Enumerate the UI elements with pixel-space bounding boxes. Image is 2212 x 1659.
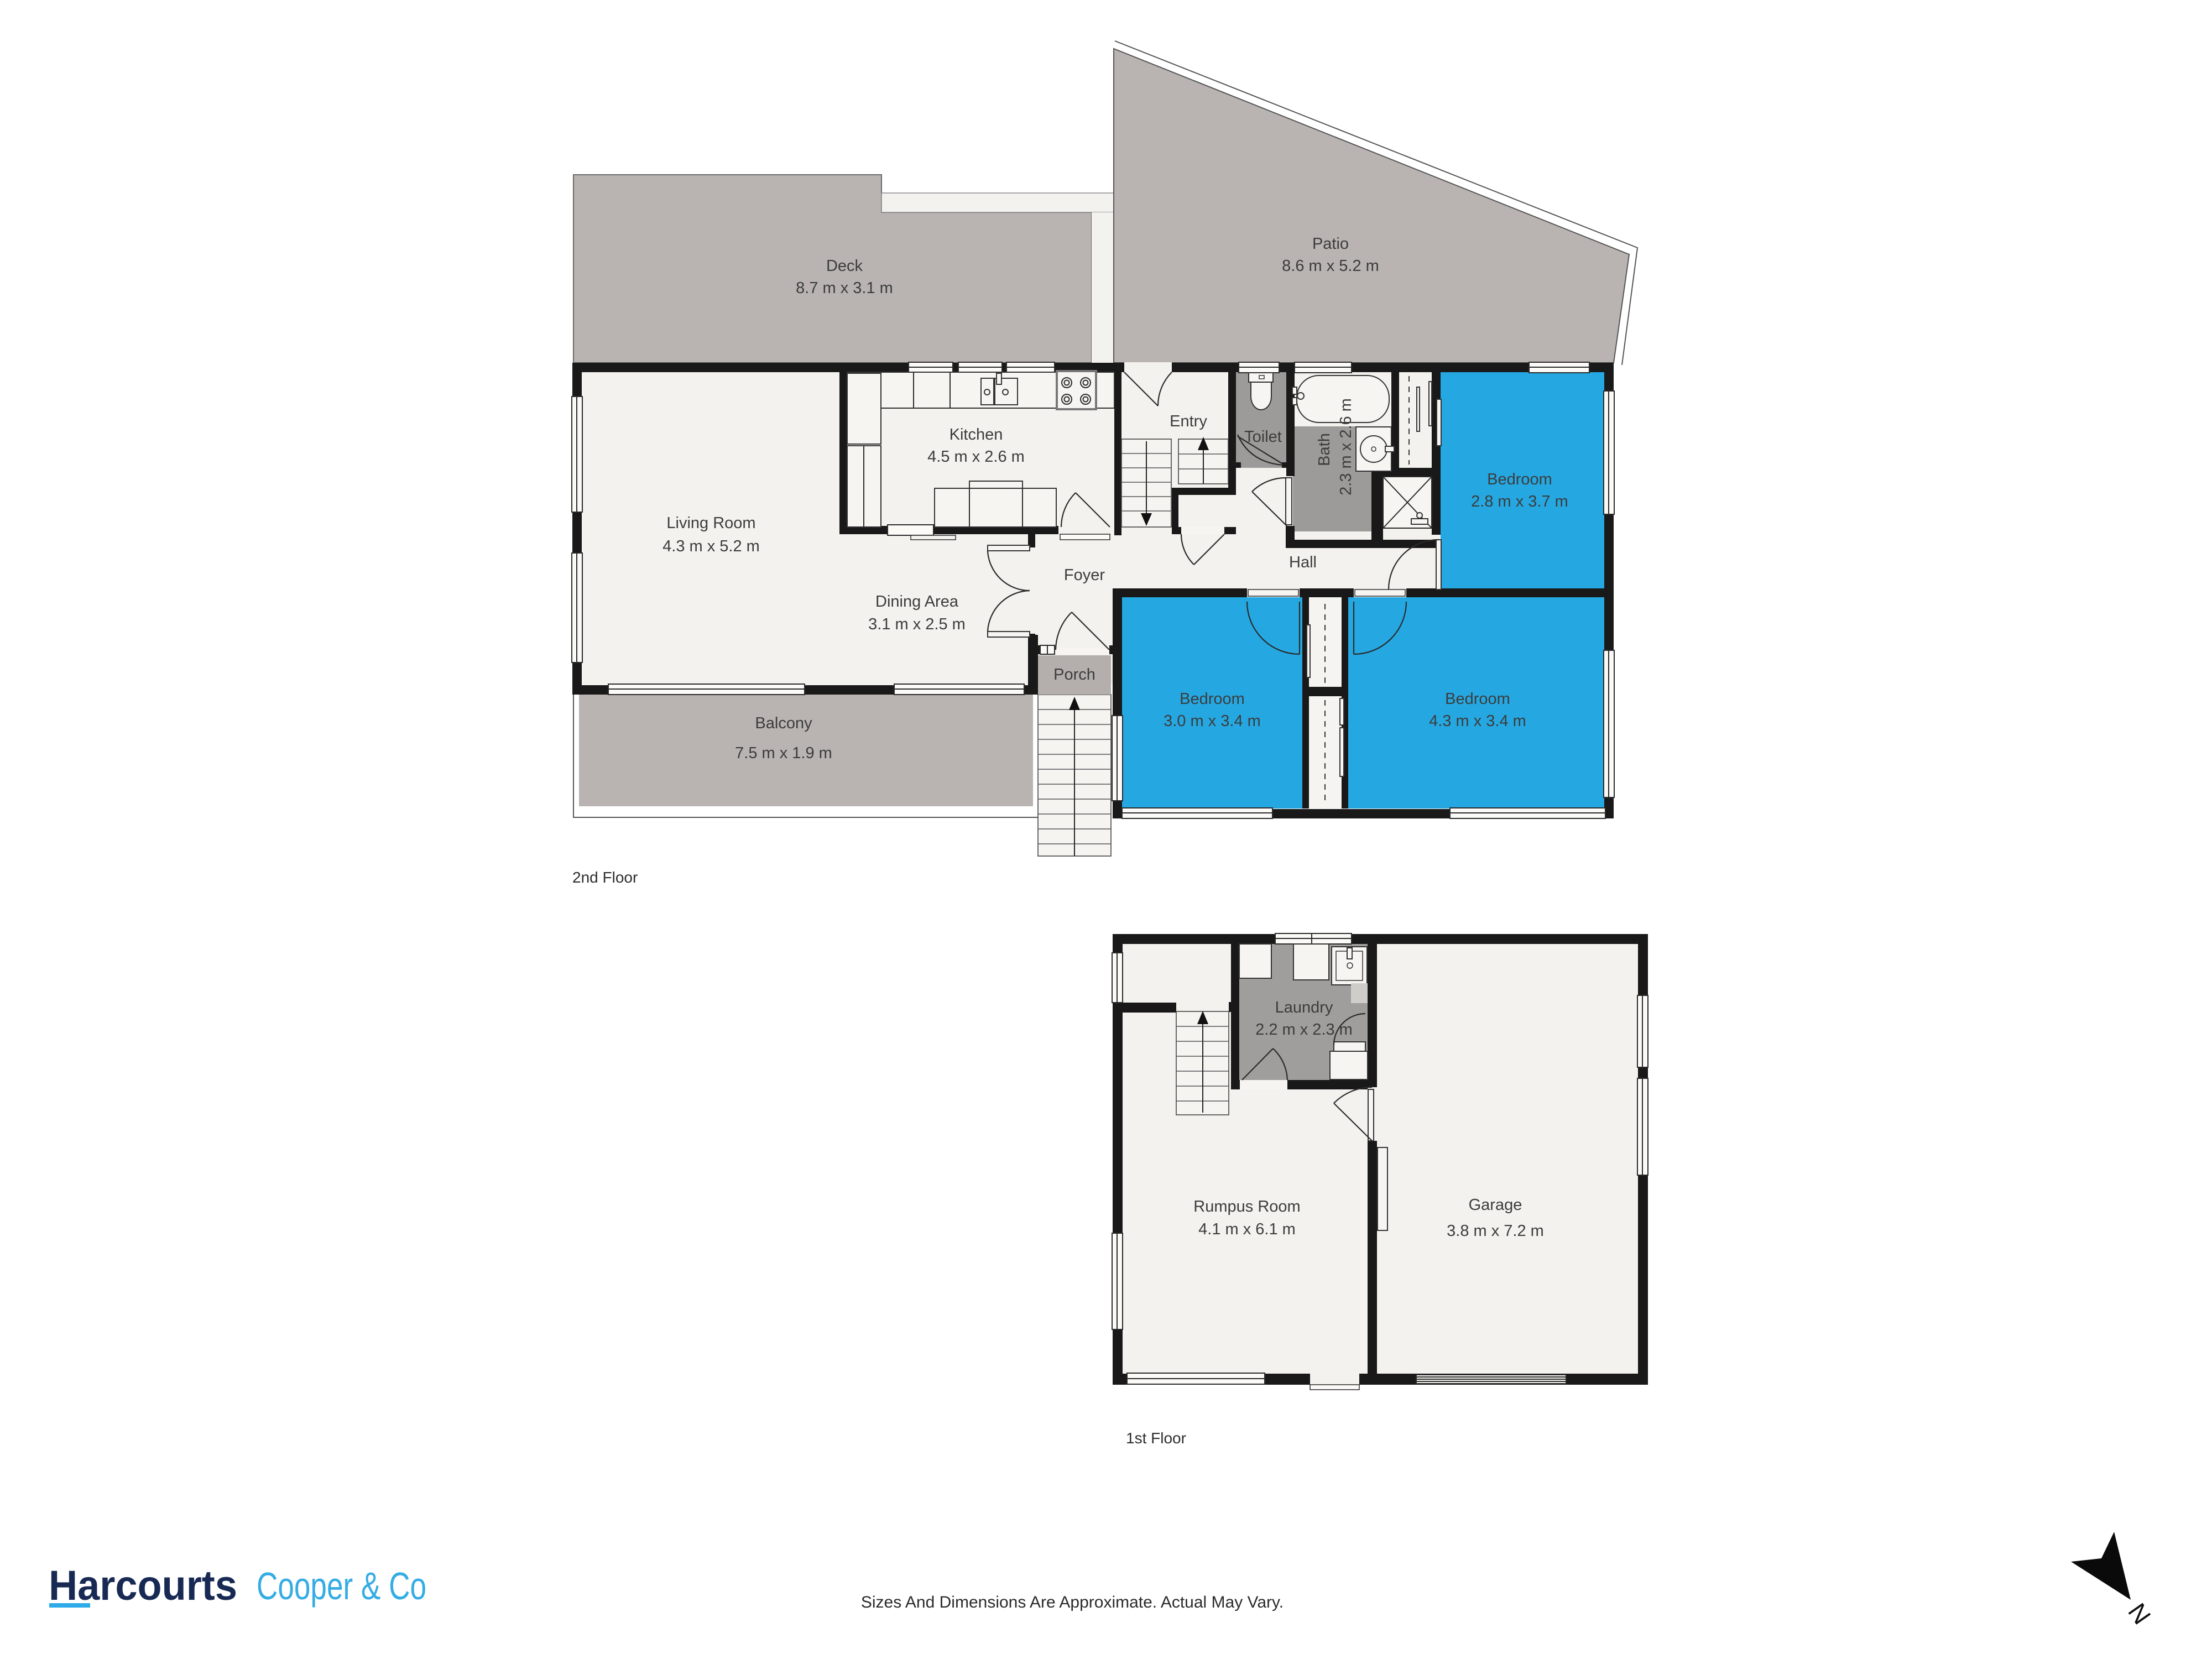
svg-text:2.2 m x 2.3 m: 2.2 m x 2.3 m	[1255, 1021, 1353, 1039]
svg-text:Deck: Deck	[826, 257, 863, 275]
svg-text:4.3 m x 3.4 m: 4.3 m x 3.4 m	[1429, 712, 1526, 730]
svg-text:Dining Area: Dining Area	[875, 593, 959, 611]
svg-text:Rumpus Room: Rumpus Room	[1193, 1198, 1300, 1215]
svg-text:4.3 m x 5.2 m: 4.3 m x 5.2 m	[662, 538, 760, 555]
svg-text:2nd Floor: 2nd Floor	[572, 869, 638, 886]
svg-text:Bedroom: Bedroom	[1445, 690, 1510, 708]
svg-text:2.3 m x 2.6 m: 2.3 m x 2.6 m	[1337, 398, 1355, 495]
svg-text:Porch: Porch	[1053, 666, 1095, 684]
svg-text:8.6 m x 5.2 m: 8.6 m x 5.2 m	[1282, 257, 1379, 275]
svg-text:3.8 m x 7.2 m: 3.8 m x 7.2 m	[1447, 1222, 1544, 1240]
svg-text:Hall: Hall	[1289, 554, 1317, 571]
svg-text:Bath: Bath	[1316, 433, 1333, 466]
svg-text:Cooper & Co: Cooper & Co	[257, 1564, 426, 1608]
svg-text:Kitchen: Kitchen	[950, 426, 1003, 444]
svg-text:Garage: Garage	[1469, 1196, 1522, 1214]
svg-text:Bedroom: Bedroom	[1180, 690, 1245, 708]
svg-text:Harcourts: Harcourts	[49, 1562, 237, 1609]
svg-text:Patio: Patio	[1312, 235, 1349, 253]
svg-text:4.5 m x 2.6 m: 4.5 m x 2.6 m	[927, 448, 1025, 466]
svg-text:2.8 m x 3.7 m: 2.8 m x 3.7 m	[1471, 493, 1568, 510]
svg-text:Sizes And Dimensions Are Appro: Sizes And Dimensions Are Approximate. Ac…	[861, 1593, 1284, 1611]
svg-text:8.7 m x 3.1 m: 8.7 m x 3.1 m	[796, 279, 893, 297]
svg-text:Entry: Entry	[1170, 413, 1207, 430]
svg-text:Living Room: Living Room	[666, 514, 755, 532]
svg-text:3.0 m x 3.4 m: 3.0 m x 3.4 m	[1164, 712, 1261, 730]
svg-text:Laundry: Laundry	[1275, 999, 1333, 1016]
svg-text:Toilet: Toilet	[1244, 428, 1282, 446]
svg-text:Bedroom: Bedroom	[1487, 471, 1552, 488]
svg-text:4.1 m x 6.1 m: 4.1 m x 6.1 m	[1198, 1220, 1296, 1238]
svg-text:Foyer: Foyer	[1064, 566, 1105, 584]
svg-text:1st Floor: 1st Floor	[1126, 1430, 1186, 1447]
svg-text:3.1 m x 2.5 m: 3.1 m x 2.5 m	[868, 615, 966, 633]
svg-text:7.5 m x 1.9 m: 7.5 m x 1.9 m	[735, 744, 832, 762]
svg-text:Balcony: Balcony	[755, 714, 812, 732]
